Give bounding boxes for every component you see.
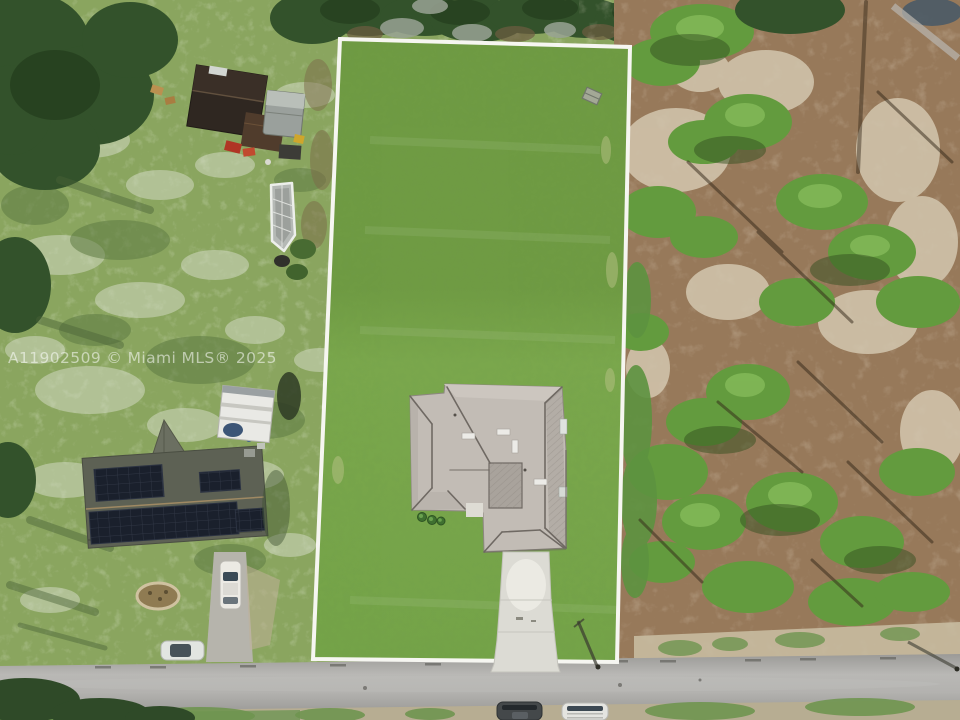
road-edge-mark <box>880 657 896 660</box>
lawn-texture <box>300 30 640 670</box>
outlined-property-lot <box>300 30 640 672</box>
bare-soil-patch <box>310 130 334 190</box>
thin-lawn-patch <box>606 252 618 288</box>
entry-walkway <box>466 503 483 517</box>
shrub-shadow <box>694 136 766 164</box>
shrub-shadow <box>684 426 756 454</box>
sedan-cabin <box>170 644 191 657</box>
shrub-shadow <box>650 34 730 66</box>
tree-canopy-dark <box>10 50 100 120</box>
road-speck <box>699 679 702 682</box>
shrub <box>670 216 738 258</box>
shrub <box>874 572 950 612</box>
soil-gap <box>495 26 535 42</box>
garden-plant <box>148 591 152 595</box>
dark-object <box>274 255 290 267</box>
roof-speck <box>524 469 527 472</box>
car-windshield <box>223 572 238 581</box>
gray-brush <box>452 24 492 42</box>
white-suv-roadside <box>562 703 608 720</box>
gray-truck <box>263 90 305 138</box>
roof-vent <box>512 440 518 453</box>
pale-patch <box>126 170 194 200</box>
solar-panel-array <box>199 470 240 493</box>
house-shadow <box>262 470 290 546</box>
roof-vent <box>462 433 475 439</box>
gray-brush <box>380 18 424 38</box>
shrub-highlight <box>419 514 423 518</box>
solar-panel-array <box>235 508 264 532</box>
blue-tarp <box>223 423 243 437</box>
oval-garden-bed <box>137 583 179 609</box>
roof-vent <box>534 479 547 485</box>
road-edge-mark <box>330 664 346 667</box>
driveway-stain <box>516 617 523 620</box>
white-sedan-roadside <box>161 641 204 660</box>
rooftop-equipment <box>257 443 265 449</box>
shrub <box>879 448 955 496</box>
shrub <box>702 561 794 613</box>
pale-patch <box>35 366 145 414</box>
roof-center-texture <box>489 463 522 508</box>
dark-equipment <box>279 144 302 160</box>
shoulder-grass <box>645 702 755 720</box>
road-edge-mark <box>745 659 761 662</box>
rooftop-equipment <box>244 449 255 457</box>
dark-suv-roadside <box>497 702 542 720</box>
road-edge-mark <box>240 665 256 668</box>
tree-canopy <box>82 2 178 78</box>
shoulder-grass <box>880 627 920 641</box>
ac-unit <box>560 419 567 434</box>
dark-grass-patch <box>70 220 170 260</box>
suv-roof-rail <box>567 717 603 719</box>
roof-vent <box>497 429 510 435</box>
garden-plant <box>164 590 168 594</box>
shrub-shadow <box>844 546 916 574</box>
white-car-driveway <box>220 561 241 609</box>
shrub-highlight <box>725 103 765 127</box>
white-debris <box>265 159 271 165</box>
suv-windshield <box>567 706 603 711</box>
shrub <box>876 276 960 328</box>
pale-patch <box>95 282 185 318</box>
boundary-bushes <box>621 526 649 598</box>
bush <box>286 264 308 280</box>
shoulder-grass <box>658 640 702 656</box>
suv-sunroof <box>512 712 528 719</box>
pale-patch <box>225 316 285 344</box>
shrub-highlight <box>768 482 812 508</box>
road-edge-mark <box>150 666 166 669</box>
road-wear-band <box>20 676 940 692</box>
shrub-highlight <box>438 518 442 522</box>
sand-patch <box>686 264 770 320</box>
pole-base <box>955 667 960 672</box>
bare-soil-patch <box>304 59 332 111</box>
road-speck <box>363 686 367 690</box>
road-speck <box>618 683 622 687</box>
thin-lawn-patch <box>332 456 344 484</box>
thin-lawn-patch <box>601 136 611 164</box>
road-edge-mark <box>425 663 441 666</box>
shrub-highlight <box>429 517 433 521</box>
shoulder-grass <box>805 698 915 716</box>
car-rear-window <box>223 597 238 604</box>
shoulder-grass <box>405 708 455 720</box>
shrub-highlight <box>680 503 720 527</box>
soil-gap <box>582 24 618 40</box>
shrub-shadow <box>810 254 890 286</box>
driveway-stain <box>531 620 536 622</box>
shrub-highlight <box>798 184 842 208</box>
pale-patch <box>181 250 249 280</box>
shrub-highlight <box>725 373 765 397</box>
suv-roof-rail <box>567 713 603 715</box>
aerial-photo-canvas: A11902509 © Miami MLS® 2025 <box>0 0 960 720</box>
suv-windshield <box>502 705 537 710</box>
sand-patch <box>856 98 940 202</box>
thin-lawn-patch <box>605 368 615 392</box>
road-edge-mark <box>95 666 111 669</box>
shoulder-grass <box>712 637 748 651</box>
pine-woodland <box>613 0 960 672</box>
mls-watermark: A11902509 © Miami MLS® 2025 <box>8 349 277 367</box>
driveway-bright-patch <box>506 559 546 611</box>
bush <box>290 239 316 259</box>
road-edge-mark <box>800 658 816 661</box>
gray-brush <box>544 22 576 38</box>
car-roof <box>223 583 238 595</box>
shoulder-grass <box>775 632 825 648</box>
dark-grass-patch <box>1 185 69 225</box>
shrub-shadow <box>740 504 820 536</box>
solar-panel-array <box>94 465 164 502</box>
road-edge-mark <box>660 660 676 663</box>
shrub <box>759 278 835 326</box>
aerial-photo: A11902509 © Miami MLS® 2025 <box>0 0 960 720</box>
shrub-highlight <box>850 235 890 257</box>
pole-base <box>596 665 601 670</box>
dark-bush <box>277 372 301 420</box>
roof-speck <box>454 414 457 417</box>
garden-plant <box>158 597 162 601</box>
red-equipment <box>243 147 256 157</box>
